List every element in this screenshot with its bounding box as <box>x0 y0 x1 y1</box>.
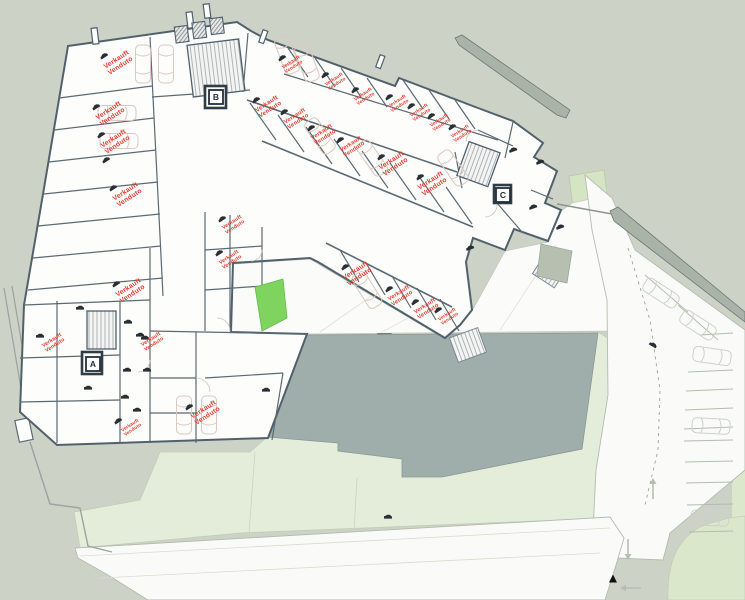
stairwell-badge: A <box>86 357 100 371</box>
stairwell-badge-letter: A <box>90 359 96 369</box>
stair-a <box>87 311 116 349</box>
site-plan-page: VerkauftVendutoVerkauftVendutoVerkauftVe… <box>0 0 745 600</box>
stairwell-badge-letter: C <box>500 190 506 200</box>
stairwell-badge: B <box>209 90 223 104</box>
stairwell-badge-letter: B <box>213 92 219 102</box>
terrace-patch <box>537 244 572 283</box>
site-plan-drawing: VerkauftVendutoVerkauftVendutoVerkauftVe… <box>0 0 745 600</box>
stairwell-badge: C <box>496 188 510 202</box>
